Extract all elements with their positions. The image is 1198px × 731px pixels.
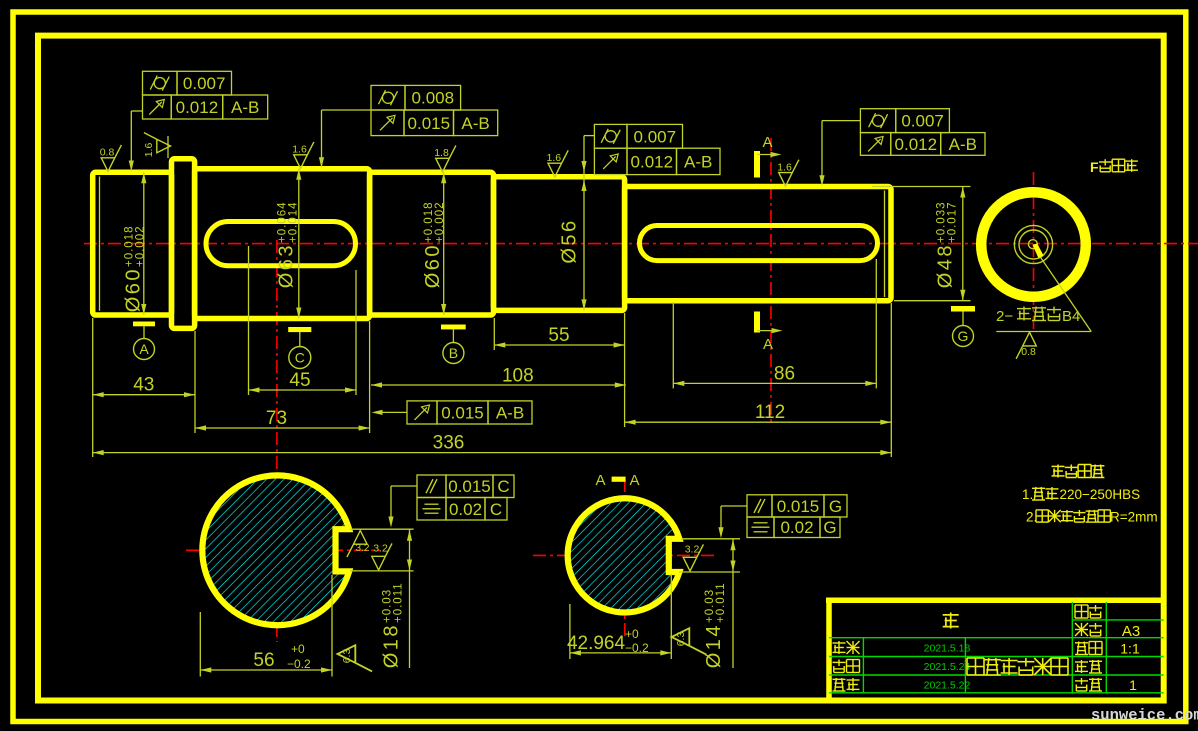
svg-text:C: C <box>497 477 509 496</box>
svg-text:G: G <box>829 497 842 516</box>
svg-text:2021.5.24: 2021.5.24 <box>924 661 971 673</box>
svg-text:0.015: 0.015 <box>777 497 820 516</box>
svg-text:0.007: 0.007 <box>634 127 677 146</box>
svg-text:0.02: 0.02 <box>449 500 482 519</box>
svg-text:−0.2: −0.2 <box>287 657 311 671</box>
svg-text:0.015: 0.015 <box>441 403 484 422</box>
svg-text:G: G <box>958 328 969 344</box>
svg-text:1:1: 1:1 <box>1120 641 1140 657</box>
svg-text:−0.2: −0.2 <box>625 641 649 655</box>
svg-text:A: A <box>139 341 149 357</box>
svg-text:B: B <box>449 345 458 361</box>
svg-text:1.6: 1.6 <box>292 144 307 156</box>
svg-text:86: 86 <box>774 364 795 385</box>
svg-text:1.8: 1.8 <box>434 147 449 159</box>
svg-text:+0.017: +0.017 <box>947 202 959 244</box>
svg-text:A-B: A-B <box>684 152 712 171</box>
svg-text:0.015: 0.015 <box>408 114 451 133</box>
svg-text:0.8: 0.8 <box>100 147 115 159</box>
svg-text:108: 108 <box>502 366 534 387</box>
svg-text:+0: +0 <box>291 642 305 656</box>
svg-text:C: C <box>490 500 502 519</box>
svg-text:2−: 2− <box>996 308 1013 325</box>
svg-text:42.964: 42.964 <box>567 633 626 654</box>
svg-text:220−250HBS: 220−250HBS <box>1060 487 1141 502</box>
svg-text:A-B: A-B <box>949 135 977 154</box>
svg-text:Ø18: Ø18 <box>381 623 403 668</box>
svg-text:45: 45 <box>289 370 310 391</box>
svg-text:Ø60: Ø60 <box>123 267 145 312</box>
svg-text:C: C <box>295 350 305 366</box>
svg-text:1: 1 <box>1129 677 1137 693</box>
svg-text:Ø48: Ø48 <box>935 243 957 288</box>
svg-text:A: A <box>762 134 772 151</box>
svg-text:0.02: 0.02 <box>780 518 813 537</box>
svg-text:A-B: A-B <box>461 114 489 133</box>
svg-text:A: A <box>595 472 605 489</box>
svg-text:43: 43 <box>133 375 154 396</box>
svg-text:0.008: 0.008 <box>412 89 455 108</box>
svg-text:3.2: 3.2 <box>356 543 370 554</box>
svg-text:3.2: 3.2 <box>685 544 700 556</box>
svg-text:A: A <box>629 472 639 489</box>
svg-text:56: 56 <box>253 650 274 671</box>
svg-text:112: 112 <box>755 402 785 423</box>
svg-text:A3: A3 <box>1122 623 1140 640</box>
svg-text:Ø63: Ø63 <box>276 243 298 288</box>
svg-text:Ø60: Ø60 <box>422 243 444 288</box>
svg-text:0.8: 0.8 <box>1021 346 1036 358</box>
svg-text:G: G <box>823 518 836 537</box>
svg-text:0.007: 0.007 <box>183 74 226 93</box>
svg-text:sunweice.com: sunweice.com <box>1091 707 1198 725</box>
svg-text:A-B: A-B <box>496 403 524 422</box>
svg-text:0.012: 0.012 <box>895 135 938 154</box>
svg-text:2021.5.18: 2021.5.18 <box>924 643 971 655</box>
svg-text:+0.002: +0.002 <box>434 202 446 244</box>
svg-text:1.6: 1.6 <box>143 143 155 158</box>
svg-text:F: F <box>1090 159 1099 175</box>
svg-text:+0.011: +0.011 <box>393 582 405 623</box>
svg-text:+0.014: +0.014 <box>288 202 300 244</box>
svg-text:A-B: A-B <box>231 98 259 117</box>
svg-text:Ø14: Ø14 <box>703 623 725 668</box>
svg-text:+0.002: +0.002 <box>135 226 147 268</box>
svg-text:+0.011: +0.011 <box>715 582 727 623</box>
svg-text:Ø56: Ø56 <box>559 218 581 263</box>
svg-text:55: 55 <box>548 325 569 346</box>
svg-text:B4: B4 <box>1062 308 1080 325</box>
svg-text:+0: +0 <box>625 627 639 641</box>
svg-text:73: 73 <box>266 408 287 429</box>
svg-text:2021.5.22: 2021.5.22 <box>924 680 971 692</box>
svg-text:6.3: 6.3 <box>341 649 353 664</box>
svg-text:336: 336 <box>433 433 465 454</box>
svg-text:0.015: 0.015 <box>448 477 491 496</box>
svg-text:1.6: 1.6 <box>546 152 561 164</box>
svg-text:1.6: 1.6 <box>777 161 792 173</box>
svg-text:0.012: 0.012 <box>176 98 219 117</box>
svg-text:0.012: 0.012 <box>631 152 674 171</box>
svg-text:0.007: 0.007 <box>901 112 944 131</box>
svg-text:R=2mm: R=2mm <box>1110 510 1158 525</box>
svg-text:3.2: 3.2 <box>373 543 388 555</box>
svg-text:1.: 1. <box>1022 487 1033 502</box>
svg-text:A: A <box>763 336 773 353</box>
svg-text:6.3: 6.3 <box>675 632 687 647</box>
